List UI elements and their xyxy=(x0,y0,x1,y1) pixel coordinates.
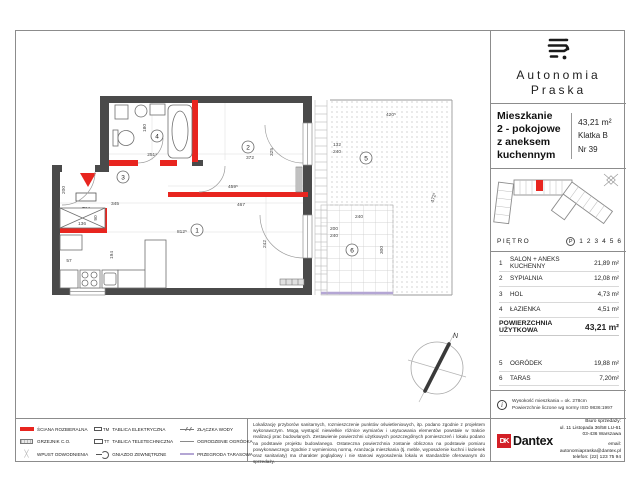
table-row: 5 OGRÓDEK 19,88 m² xyxy=(499,357,619,372)
teletechnic-panel-swatch xyxy=(94,439,103,444)
sales-office-info: Biuro sprzedaży: ul. 11 Listopada 36/58 … xyxy=(553,419,621,462)
legend-label: ZŁĄCZKA WODY xyxy=(197,427,233,432)
drain-icon: ╳ xyxy=(19,451,34,458)
floor-option-5: 5 xyxy=(610,238,614,245)
removable-wall-swatch xyxy=(20,427,34,431)
brand-name-line1: Autonomia xyxy=(516,68,600,83)
unit-type-line: Mieszkanie xyxy=(497,110,569,123)
legend-label: ŚCIANA ROZBIERALNA xyxy=(37,427,88,432)
row-number: 6 xyxy=(499,375,510,382)
row-name: OGRÓDEK xyxy=(510,360,594,367)
table-row: 3 HOL 4,73 m² xyxy=(499,287,619,303)
total-area: 43,21 m² xyxy=(585,322,619,332)
counter-icon xyxy=(118,270,148,288)
svg-text:345: 345 xyxy=(111,201,119,207)
unit-number: Nr 39 xyxy=(578,143,612,157)
svg-text:4: 4 xyxy=(155,134,159,141)
legend-item: ZŁĄCZKA WODY xyxy=(179,424,253,434)
legend-column-2: TM TABLICA ELEKTRYCZNA TT TABLICA TELETE… xyxy=(94,423,173,460)
table-row: 2 SYPIALNIA 12,08 m² xyxy=(499,272,619,288)
legend-label: GRZEJNIK C.O. xyxy=(37,439,70,444)
bathroom-fixtures xyxy=(113,104,192,158)
legend-item: PRZEGRODA TARASOWA xyxy=(179,449,253,459)
autonomia-praska-logo-icon xyxy=(540,36,578,68)
bathroom-sink-icon xyxy=(135,105,147,117)
legend-label: TABLICA TELETECHNICZNA xyxy=(112,439,173,444)
floor-selector: P 1 2 3 4 5 6 xyxy=(566,237,621,246)
row-name: SALON + ANEKS KUCHENNY xyxy=(510,256,594,270)
unit-title-block: Mieszkanie 2 - pokojowe z aneksem kuchen… xyxy=(491,104,626,169)
note-line: Powierzchnie liczone wg normy ISO 9836:1… xyxy=(512,405,613,412)
brand-name-line2: Praska xyxy=(531,83,586,98)
row-name: TARAS xyxy=(510,375,599,382)
office-phone: telefon: (22) 123 75 94 xyxy=(553,455,621,462)
floor-option-3: 3 xyxy=(595,238,599,245)
floor-option-1: 1 xyxy=(579,238,583,245)
office-title: Biuro sprzedaży: xyxy=(553,419,621,426)
legend-item: GRZEJNIK C.O. xyxy=(19,437,88,447)
row-area: 7,20m² xyxy=(599,375,619,382)
unit-meta: 43,21 m² Klatka B Nr 39 xyxy=(578,115,612,157)
disclaimer-text: Lokalizację przyborów sanitarnych, rozmi… xyxy=(248,418,490,462)
svg-text:300: 300 xyxy=(379,246,385,254)
north-label: N xyxy=(453,333,459,340)
legend-label: OGRODZENIE OGRÓDKA xyxy=(197,439,253,444)
legend-item: TT TABLICA TELETECHNICZNA xyxy=(94,437,173,447)
svg-text:459⁵: 459⁵ xyxy=(228,184,238,190)
terrace-divider-swatch xyxy=(180,453,194,456)
info-note-text: Wysokość mieszkania = ok. 278cm Powierzc… xyxy=(512,398,613,412)
row-area: 21,89 m² xyxy=(594,260,619,267)
outdoor-socket-icon xyxy=(96,450,108,458)
svg-text:812⁵: 812⁵ xyxy=(177,229,187,235)
legend-item: TM TABLICA ELEKTRYCZNA xyxy=(94,424,173,434)
table-row: 6 TARAS 7,20m² xyxy=(499,372,619,387)
compass-rose: N xyxy=(408,332,466,402)
row-area: 12,08 m² xyxy=(594,275,619,282)
shaft-icon xyxy=(60,270,78,288)
floor-option-2: 2 xyxy=(587,238,591,245)
walkway-strip xyxy=(315,100,327,295)
table-total-row: POWIERZCHNIA UŻYTKOWA 43,21 m² xyxy=(499,318,619,336)
table-row: 1 SALON + ANEKS KUCHENNY 21,89 m² xyxy=(499,256,619,272)
legend-box: ŚCIANA ROZBIERALNA GRZEJNIK C.O. ╳ WPUST… xyxy=(15,418,248,462)
radiator-swatch xyxy=(20,439,33,444)
brand-block: Autonomia Praska xyxy=(491,30,626,104)
dantex-logo-mark-icon: DK xyxy=(497,434,511,448)
svg-text:467: 467 xyxy=(237,202,245,208)
svg-text:240: 240 xyxy=(355,214,363,220)
legend-label: WPUST ODWODNIENIA xyxy=(37,452,88,457)
row-area: 4,73 m² xyxy=(598,291,619,298)
svg-text:200: 200 xyxy=(61,186,67,194)
panel-tag: TT xyxy=(104,439,109,444)
bathroom-cabinet-icon xyxy=(150,104,165,115)
svg-text:325: 325 xyxy=(269,148,275,156)
floor-label: PIĘTRO xyxy=(497,238,530,245)
right-column: Autonomia Praska Mieszkanie 2 - pokojowe… xyxy=(490,30,625,462)
kitchen-fixtures xyxy=(60,208,166,288)
peninsula-counter-icon xyxy=(145,240,166,288)
electric-panel-swatch xyxy=(94,427,102,432)
svg-text:240: 240 xyxy=(333,149,341,155)
divider xyxy=(571,113,572,159)
row-number: 1 xyxy=(499,260,510,267)
legend-label: GNIAZDO ZEWNĘTRZNE xyxy=(112,452,166,457)
floor-selector-row: PIĘTRO P 1 2 3 4 5 6 xyxy=(497,237,621,246)
legend-item: OGRODZENIE OGRÓDKA xyxy=(179,437,253,447)
radiators xyxy=(280,167,304,285)
legend-label: PRZEGRODA TARASOWA xyxy=(197,452,253,457)
office-email: email: autonomiapraska@dantex.pl xyxy=(553,442,621,455)
svg-text:242: 242 xyxy=(262,240,268,248)
row-name: ŁAZIENKA xyxy=(510,306,598,313)
svg-text:180: 180 xyxy=(142,124,148,132)
unit-type-line: kuchennym xyxy=(497,149,569,162)
svg-text:132: 132 xyxy=(333,142,341,148)
table-spacer xyxy=(499,336,619,357)
row-number: 4 xyxy=(499,306,510,313)
legend-item: GNIAZDO ZEWNĘTRZNE xyxy=(94,449,173,459)
svg-text:1: 1 xyxy=(195,228,199,235)
floor-p-badge: P xyxy=(566,237,575,246)
legend-label: TABLICA ELEKTRYCZNA xyxy=(112,427,165,432)
svg-text:90: 90 xyxy=(93,215,99,221)
entrance-arrow-icon xyxy=(80,173,96,187)
legend-item: ╳ WPUST ODWODNIENIA xyxy=(19,449,88,459)
unit-staircase: Klatka B xyxy=(578,129,612,143)
contact-block: DK Dantex Biuro sprzedaży: ul. 11 Listop… xyxy=(491,419,626,462)
dantex-logo: DK Dantex xyxy=(497,434,553,448)
unit-type-line: z aneksem xyxy=(497,136,569,149)
unit-type-line: 2 - pokojowe xyxy=(497,123,569,136)
svg-text:372: 372 xyxy=(246,155,254,161)
svg-text:251¹: 251¹ xyxy=(147,152,157,158)
unit-location-marker xyxy=(536,180,543,191)
svg-text:420⁵: 420⁵ xyxy=(386,112,396,118)
legend-column-1: ŚCIANA ROZBIERALNA GRZEJNIK C.O. ╳ WPUST… xyxy=(19,423,88,460)
cabinet-icon xyxy=(60,235,82,250)
svg-text:2: 2 xyxy=(246,145,250,152)
panel-tag: TM xyxy=(103,427,109,432)
building-site-plan xyxy=(492,172,625,230)
row-number: 3 xyxy=(499,291,510,298)
svg-text:240: 240 xyxy=(330,233,338,239)
table-row: 4 ŁAZIENKA 4,51 m² xyxy=(499,303,619,319)
legend-column-3: ZŁĄCZKA WODY OGRODZENIE OGRÓDKA PRZEGROD… xyxy=(179,423,253,460)
toilet-icon xyxy=(118,131,134,146)
svg-text:200: 200 xyxy=(330,226,338,232)
svg-text:5: 5 xyxy=(364,156,368,163)
radiator-icon xyxy=(296,167,302,192)
row-number: 2 xyxy=(499,275,510,282)
info-icon: i xyxy=(497,400,507,410)
svg-text:194: 194 xyxy=(109,251,115,259)
svg-text:6: 6 xyxy=(350,248,354,255)
row-area: 19,88 m² xyxy=(594,360,619,367)
washing-machine-icon xyxy=(115,105,128,119)
site-plan-block: PIĘTRO P 1 2 3 4 5 6 xyxy=(491,169,626,252)
note-line: Wysokość mieszkania = ok. 278cm xyxy=(512,398,613,405)
row-name: SYPIALNIA xyxy=(510,275,594,282)
compass-needle xyxy=(425,344,449,391)
row-number: 5 xyxy=(499,360,510,367)
unit-type: Mieszkanie 2 - pokojowe z aneksem kuchen… xyxy=(497,110,569,162)
svg-text:3: 3 xyxy=(121,175,125,182)
floor-option-4: 4 xyxy=(602,238,606,245)
unit-area: 43,21 m² xyxy=(578,115,612,129)
water-connector-icon xyxy=(180,426,194,432)
office-address: 03-436 Warszawa xyxy=(553,432,621,439)
info-note-block: i Wysokość mieszkania = ok. 278cm Powier… xyxy=(491,391,626,419)
svg-text:57: 57 xyxy=(66,258,72,264)
row-area: 4,51 m² xyxy=(598,306,619,313)
row-name: HOL xyxy=(510,291,598,298)
rooms-table: 1 SALON + ANEKS KUCHENNY 21,89 m² 2 SYPI… xyxy=(491,252,626,391)
legend-item: ŚCIANA ROZBIERALNA xyxy=(19,424,88,434)
toilet-tank-icon xyxy=(113,130,118,146)
floor-option-6: 6 xyxy=(617,238,621,245)
dantex-name: Dantex xyxy=(513,434,553,448)
floor-plan-drawing: TM xyxy=(15,30,490,418)
total-label: POWIERZCHNIA UŻYTKOWA xyxy=(499,320,585,334)
svg-text:136: 136 xyxy=(78,221,86,227)
garden-fence-swatch xyxy=(180,441,194,442)
floorplan-card-page: TM xyxy=(0,0,640,480)
mini-compass-icon xyxy=(604,174,618,186)
